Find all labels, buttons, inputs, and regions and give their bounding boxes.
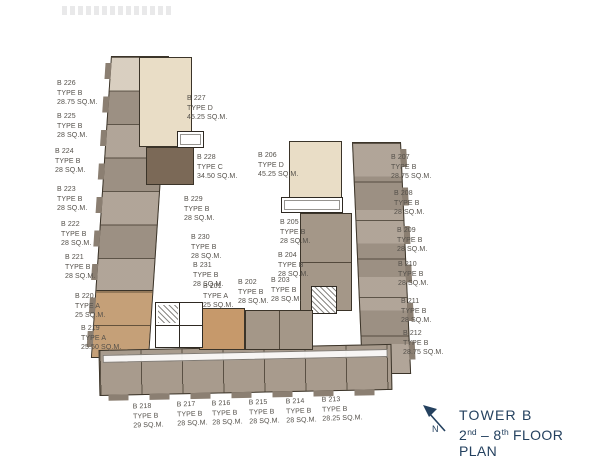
unit-area: 28 SQ.M. — [401, 316, 431, 326]
unit-type: TYPE B — [191, 243, 221, 253]
unit-area: 28.75 SQ.M. — [57, 98, 97, 108]
unit-divider — [301, 262, 351, 263]
unit-area: 28 SQ.M. — [212, 417, 243, 428]
unit-area: 28 SQ.M. — [57, 131, 87, 141]
unit-type: TYPE B — [271, 286, 301, 296]
unit-label-b229: B 229TYPE B28 SQ.M. — [184, 195, 214, 224]
unit-label-b204: B 204TYPE B28 SQ.M. — [278, 251, 308, 280]
wing-bottom — [99, 344, 393, 396]
unit-id: B 211 — [401, 297, 431, 307]
unit-id: B 206 — [258, 151, 298, 161]
unit-label-b227: B 227TYPE D45.25 SQ.M. — [187, 94, 227, 123]
unit-label-b215: B 215TYPE B28 SQ.M. — [249, 397, 280, 427]
unit-type: TYPE B — [391, 163, 431, 173]
unit-id: B 201 — [203, 282, 233, 292]
unit-id: B 208 — [394, 189, 424, 199]
unit-area: 28.25 SQ.M. — [322, 413, 363, 424]
unit-area: 29 SQ.M. — [133, 420, 164, 431]
unit-label-b220: B 220TYPE A25 SQ.M. — [75, 292, 105, 321]
unit-type: TYPE B — [401, 307, 431, 317]
unit-area: 28.75 SQ.M. — [403, 348, 443, 358]
unit-label-b219: B 219TYPE A25.50 SQ.M. — [81, 324, 121, 353]
unit-label-b230: B 230TYPE B28 SQ.M. — [191, 233, 221, 262]
unit-id: B 230 — [191, 233, 221, 243]
unit-type: TYPE C — [197, 163, 237, 173]
floor-range-title: 2nd – 8th FLOOR PLAN — [459, 427, 600, 459]
unit-label-b206: B 206TYPE D45.25 SQ.M. — [258, 151, 298, 180]
unit-label-b218: B 218TYPE B29 SQ.M. — [133, 401, 164, 431]
unit-type: TYPE B — [398, 270, 428, 280]
unit-block-b203 — [245, 310, 313, 350]
unit-type: TYPE B — [193, 271, 223, 281]
unit-label-b211: B 211TYPE B28 SQ.M. — [401, 297, 431, 326]
unit-area: 25 SQ.M. — [75, 311, 105, 321]
unit-label-b203: B 203TYPE B28 SQ.M. — [271, 276, 301, 305]
link-bridge-top — [177, 131, 204, 148]
unit-id: B 209 — [397, 226, 427, 236]
unit-area: 25.50 SQ.M. — [81, 343, 121, 353]
unit-area: 28 SQ.M. — [184, 214, 214, 224]
unit-label-b209: B 209TYPE B28 SQ.M. — [397, 226, 427, 255]
unit-area: 28 SQ.M. — [394, 208, 424, 218]
unit-id: B 226 — [57, 79, 97, 89]
unit-type: TYPE B — [57, 89, 97, 99]
unit-id: B 229 — [184, 195, 214, 205]
unit-label-b210: B 210TYPE B28 SQ.M. — [398, 260, 428, 289]
unit-label-b223: B 223TYPE B28 SQ.M. — [57, 185, 87, 214]
floor-dash: – — [477, 427, 494, 443]
elevator-stair-core — [155, 302, 203, 348]
unit-id: B 223 — [57, 185, 87, 195]
unit-id: B 210 — [398, 260, 428, 270]
unit-type: TYPE B — [280, 228, 310, 238]
unit-label-b205: B 205TYPE B28 SQ.M. — [280, 218, 310, 247]
unit-area: 28 SQ.M. — [61, 239, 91, 249]
unit-area: 28 SQ.M. — [238, 297, 268, 307]
unit-type: TYPE B — [57, 122, 87, 132]
unit-label-b214: B 214TYPE B28 SQ.M. — [286, 396, 317, 426]
unit-type: TYPE D — [187, 104, 227, 114]
unit-id: B 221 — [65, 253, 95, 263]
unit-id: B 202 — [238, 278, 268, 288]
unit-type: TYPE B — [278, 261, 308, 271]
unit-type: TYPE B — [57, 195, 87, 205]
unit-type: TYPE B — [55, 157, 85, 167]
unit-area: 45.25 SQ.M. — [187, 113, 227, 123]
unit-area: 28 SQ.M. — [177, 418, 208, 429]
unit-label-b201: B 201TYPE A25 SQ.M. — [203, 282, 233, 311]
tower-title: TOWER B — [459, 407, 532, 423]
unit-id: B 212 — [403, 329, 443, 339]
unit-type: TYPE B — [403, 339, 443, 349]
unit-id: B 231 — [193, 261, 223, 271]
unit-label-b222: B 222TYPE B28 SQ.M. — [61, 220, 91, 249]
unit-area: 28 SQ.M. — [65, 272, 95, 282]
unit-id: B 219 — [81, 324, 121, 334]
link-bridge-middle — [281, 197, 343, 213]
unit-label-b221: B 221TYPE B28 SQ.M. — [65, 253, 95, 282]
unit-id: B 227 — [187, 94, 227, 104]
unit-type: TYPE B — [184, 205, 214, 215]
unit-label-b207: B 207TYPE B28.75 SQ.M. — [391, 153, 431, 182]
unit-area: 34.50 SQ.M. — [197, 172, 237, 182]
unit-label-b213: B 213TYPE B28.25 SQ.M. — [322, 394, 363, 424]
unit-type: TYPE B — [397, 236, 427, 246]
core-wall — [156, 325, 202, 326]
floorplan-page: B 226TYPE B28.75 SQ.M. B 225TYPE B28 SQ.… — [0, 0, 600, 473]
unit-area: 28 SQ.M. — [280, 237, 310, 247]
stair-core-east — [311, 286, 337, 314]
north-label: N — [432, 424, 439, 434]
unit-id: B 207 — [391, 153, 431, 163]
unit-label-b225: B 225TYPE B28 SQ.M. — [57, 112, 87, 141]
floor-to-ordinal: th — [502, 427, 509, 437]
unit-label-b217: B 217TYPE B28 SQ.M. — [177, 399, 208, 429]
unit-id: B 220 — [75, 292, 105, 302]
unit-type: TYPE A — [75, 302, 105, 312]
unit-label-b216: B 216TYPE B28 SQ.M. — [212, 398, 243, 428]
unit-id: B 224 — [55, 147, 85, 157]
unit-divider — [279, 311, 280, 349]
unit-area: 28 SQ.M. — [278, 270, 308, 280]
unit-block-b228 — [146, 147, 194, 185]
floor-from-ordinal: nd — [467, 427, 476, 437]
unit-id: B 204 — [278, 251, 308, 261]
unit-area: 28 SQ.M. — [286, 415, 317, 426]
unit-id: B 222 — [61, 220, 91, 230]
unit-label-b228: B 228TYPE C34.50 SQ.M. — [197, 153, 237, 182]
unit-label-b226: B 226TYPE B28.75 SQ.M. — [57, 79, 97, 108]
unit-id: B 228 — [197, 153, 237, 163]
unit-area: 45.25 SQ.M. — [258, 170, 298, 180]
unit-area: 28 SQ.M. — [57, 204, 87, 214]
unit-area: 28.75 SQ.M. — [391, 172, 431, 182]
floor-from: 2 — [459, 427, 467, 443]
unit-type: TYPE A — [203, 292, 233, 302]
unit-area: 28 SQ.M. — [271, 295, 301, 305]
unit-id: B 205 — [280, 218, 310, 228]
north-arrow-icon: N — [420, 403, 452, 440]
stair-hatch — [158, 305, 178, 323]
unit-type: TYPE B — [238, 288, 268, 298]
unit-area: 25 SQ.M. — [203, 301, 233, 311]
unit-type: TYPE B — [61, 230, 91, 240]
faint-header-text — [62, 6, 174, 15]
unit-label-b224: B 224TYPE B28 SQ.M. — [55, 147, 85, 176]
unit-label-b212: B 212TYPE B28.75 SQ.M. — [403, 329, 443, 358]
unit-type: TYPE B — [394, 199, 424, 209]
unit-id: B 225 — [57, 112, 87, 122]
unit-area: 28 SQ.M. — [397, 245, 427, 255]
unit-type: TYPE D — [258, 161, 298, 171]
unit-area: 28 SQ.M. — [249, 416, 280, 427]
unit-block-b201-b202 — [199, 308, 245, 350]
floor-to: 8 — [493, 427, 501, 443]
unit-area: 28 SQ.M. — [398, 279, 428, 289]
unit-label-b202: B 202TYPE B28 SQ.M. — [238, 278, 268, 307]
unit-type: TYPE B — [65, 263, 95, 273]
unit-label-b208: B 208TYPE B28 SQ.M. — [394, 189, 424, 218]
unit-type: TYPE A — [81, 334, 121, 344]
unit-area: 28 SQ.M. — [55, 166, 85, 176]
